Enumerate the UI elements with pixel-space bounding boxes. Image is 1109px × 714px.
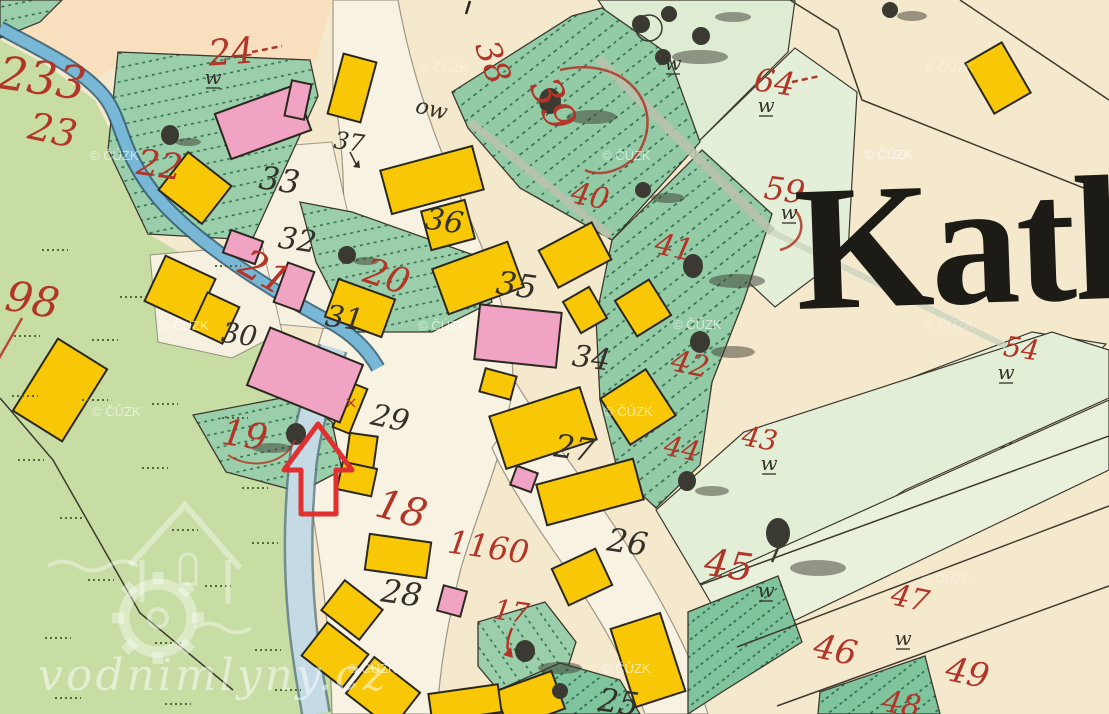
building-pink: [437, 585, 467, 616]
copyright-watermark: © ČÚZK: [864, 147, 913, 162]
copyright-watermark: © ČÚZK: [925, 60, 974, 75]
parcel-number-98: 98: [2, 271, 63, 329]
w-symbol: w: [664, 51, 681, 75]
copyright-watermark: © ČÚZK: [602, 148, 651, 163]
house-number-37: 37: [332, 126, 367, 158]
copyright-watermark: © ČÚZK: [922, 571, 971, 586]
w-symbol: w: [894, 626, 911, 650]
house-number-26: 26: [604, 520, 651, 563]
copyright-watermark: © ČÚZK: [420, 60, 469, 75]
w-symbol: w: [997, 360, 1014, 384]
parcel-number-233: 233: [0, 45, 89, 111]
building-pink: [474, 304, 561, 367]
parcel-number-17: 17: [491, 593, 531, 631]
copyright-watermark: © ČÚZK: [602, 661, 651, 676]
house-number-32: 32: [276, 221, 319, 261]
house-number-27: 27: [551, 426, 598, 470]
cadastral-map: 233 23 24 22 98 21 20 19 18 38 39 40 41 …: [0, 0, 1109, 714]
copyright-watermark: © ČÚZK: [604, 404, 653, 419]
house-number-36: 36: [423, 202, 466, 242]
map-canvas[interactable]: 233 23 24 22 98 21 20 19 18 38 39 40 41 …: [0, 0, 1109, 714]
parcel-number-22: 22: [133, 142, 185, 189]
copyright-watermark: © ČÚZK: [90, 148, 139, 163]
copyright-watermark: © ČÚZK: [673, 317, 722, 332]
w-symbol: w: [757, 93, 774, 117]
house-number-34: 34: [570, 339, 613, 379]
house-number-31: 31: [323, 299, 366, 339]
parcel-number-19: 19: [219, 412, 270, 459]
house-number-35: 35: [494, 263, 540, 306]
copyright-watermark: © ČÚZK: [925, 317, 974, 332]
house-number-30: 30: [219, 316, 259, 354]
building: [365, 534, 431, 578]
house-number-33: 33: [257, 158, 303, 201]
parcel-number-45: 45: [701, 540, 756, 590]
building: [337, 462, 377, 497]
w-symbol: w: [760, 451, 777, 475]
w-symbol: w: [204, 65, 221, 89]
copyright-watermark: © ČÚZK: [160, 318, 209, 333]
copyright-watermark: © ČÚZK: [418, 318, 467, 333]
house-number-25: 25: [595, 680, 642, 714]
house-number-28: 28: [378, 571, 425, 614]
copyright-watermark: © ČÚZK: [92, 404, 141, 419]
w-symbol: w: [757, 578, 774, 602]
site-watermark: vodnimlyny.cz: [38, 650, 389, 701]
red-x-mark: ×: [344, 393, 357, 412]
